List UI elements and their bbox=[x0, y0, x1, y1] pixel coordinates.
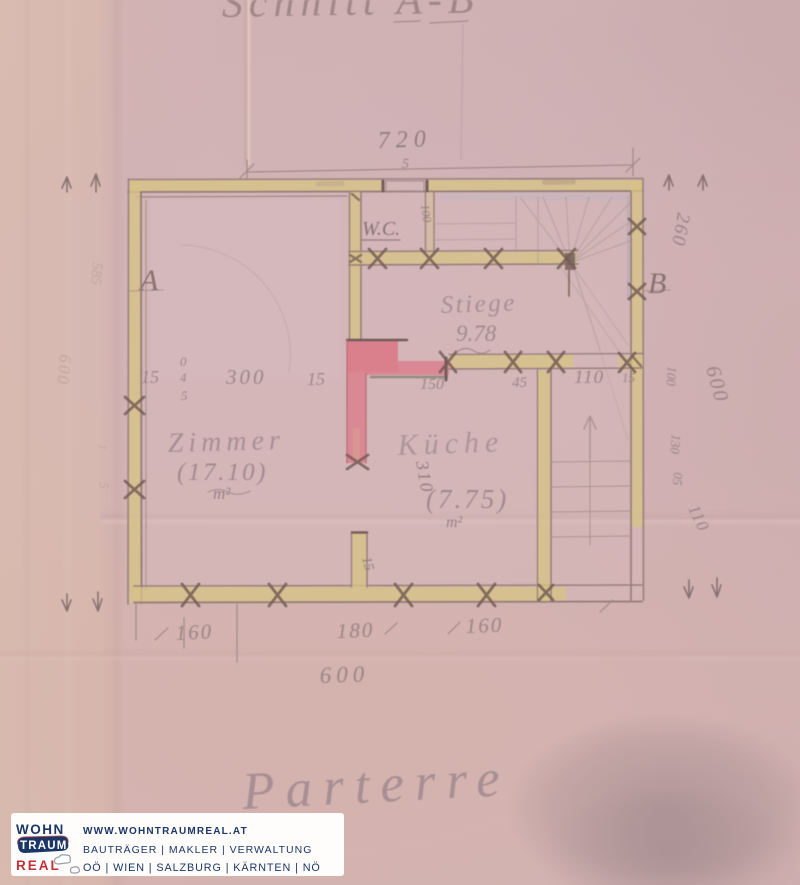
svg-text:TRAUM: TRAUM bbox=[20, 840, 68, 852]
svg-text:WOHN: WOHN bbox=[16, 822, 65, 837]
svg-text:WWW.WOHNTRAUMREAL.AT: WWW.WOHNTRAUMREAL.AT bbox=[83, 826, 248, 837]
svg-text:BAUTRÄGER | MAKLER | VERWALTUN: BAUTRÄGER | MAKLER | VERWALTUNG bbox=[83, 844, 312, 856]
svg-text:OÖ | WIEN | SALZBURG | KÄRNTEN: OÖ | WIEN | SALZBURG | KÄRNTEN | NÖ bbox=[83, 862, 321, 874]
